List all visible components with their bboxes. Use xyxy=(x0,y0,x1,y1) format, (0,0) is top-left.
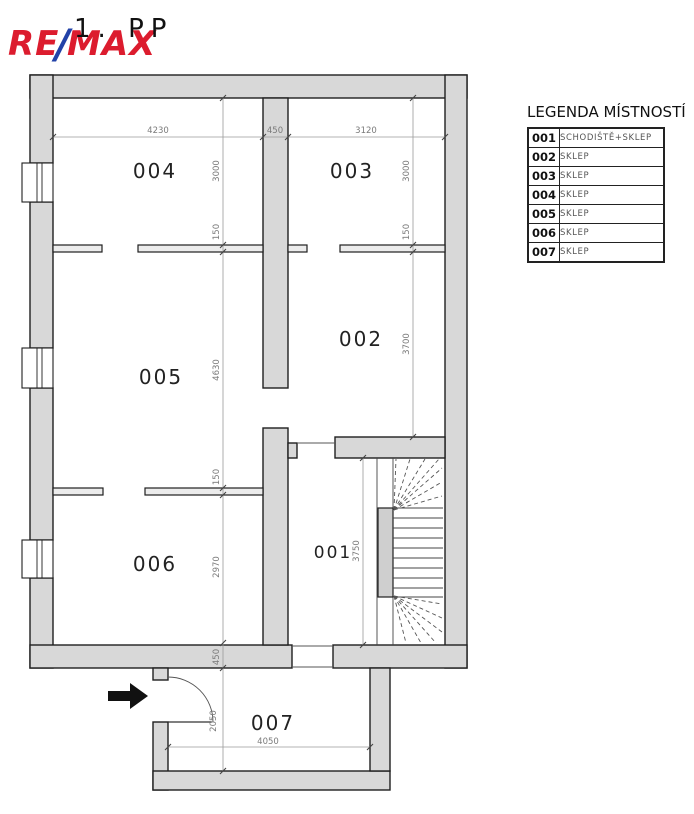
room-name-cell: SKLEP xyxy=(560,167,665,186)
dim-label-h007: 2050 xyxy=(209,710,219,732)
room-name-cell: SKLEP xyxy=(560,148,665,167)
room-name-cell: SKLEP xyxy=(560,186,665,205)
room-number-cell: 005 xyxy=(528,205,560,224)
legend-row: 007SKLEP xyxy=(528,243,664,263)
legend-title: LEGENDA MÍSTNOSTÍ xyxy=(527,103,667,121)
room-number-cell: 004 xyxy=(528,186,560,205)
entry xyxy=(108,677,213,722)
dim-label-part2: 150 xyxy=(212,469,222,485)
room-label-005: 005 xyxy=(139,365,183,389)
legend: LEGENDA MÍSTNOSTÍ 001SCHODIŠTĚ+SKLEP 002… xyxy=(527,103,667,263)
room-label-006: 006 xyxy=(133,552,177,576)
dim-label-midwall: 450 xyxy=(267,126,283,136)
dim-label-h005: 4630 xyxy=(212,359,222,381)
room-label-003: 003 xyxy=(330,159,374,183)
legend-row: 004SKLEP xyxy=(528,186,664,205)
legend-table: 001SCHODIŠTĚ+SKLEP 002SKLEP 003SKLEP 004… xyxy=(527,127,665,263)
staircase xyxy=(377,458,443,645)
room-label-002: 002 xyxy=(339,327,383,351)
dim-label-h002: 3700 xyxy=(402,333,412,355)
legend-row: 005SKLEP xyxy=(528,205,664,224)
room-name-cell: SKLEP xyxy=(560,224,665,243)
dim-label-part3: 150 xyxy=(402,224,412,240)
entry-door-swing xyxy=(168,677,213,722)
window-symbol xyxy=(22,540,53,578)
legend-row: 006SKLEP xyxy=(528,224,664,243)
legend-row: 003SKLEP xyxy=(528,167,664,186)
room-number-cell: 007 xyxy=(528,243,560,263)
room-number-cell: 003 xyxy=(528,167,560,186)
room-label-004: 004 xyxy=(133,159,177,183)
stair-newel xyxy=(378,508,393,597)
dim-label-part1: 150 xyxy=(212,224,222,240)
dim-label-w007: 4050 xyxy=(257,737,279,747)
legend-row: 002SKLEP xyxy=(528,148,664,167)
window-symbol xyxy=(22,163,53,202)
room-number-cell: 002 xyxy=(528,148,560,167)
dim-label-w003: 3120 xyxy=(355,126,377,136)
room-number-cell: 001 xyxy=(528,128,560,148)
room-label-007: 007 xyxy=(251,711,295,735)
dim-label-h001: 3750 xyxy=(352,540,362,562)
dim-label-bottomwall: 450 xyxy=(212,649,222,665)
entry-arrow-icon xyxy=(108,683,148,709)
stair-winders-bottom xyxy=(394,596,442,643)
dim-label-h006: 2970 xyxy=(212,556,222,578)
room-name-cell: SCHODIŠTĚ+SKLEP xyxy=(560,128,665,148)
legend-row: 001SCHODIŠTĚ+SKLEP xyxy=(528,128,664,148)
stair-winders-top xyxy=(394,459,442,510)
floor-label: 1. PP xyxy=(74,14,173,44)
room-name-cell: SKLEP xyxy=(560,205,665,224)
room-name-cell: SKLEP xyxy=(560,243,665,263)
room-label-001: 001 xyxy=(314,543,352,563)
dim-label-h004: 3000 xyxy=(212,160,222,182)
window-symbol xyxy=(22,348,53,388)
dim-label-h003: 3000 xyxy=(402,160,412,182)
dim-label-w004: 4230 xyxy=(147,126,169,136)
logo-re: RE xyxy=(8,24,59,64)
room-number-cell: 006 xyxy=(528,224,560,243)
